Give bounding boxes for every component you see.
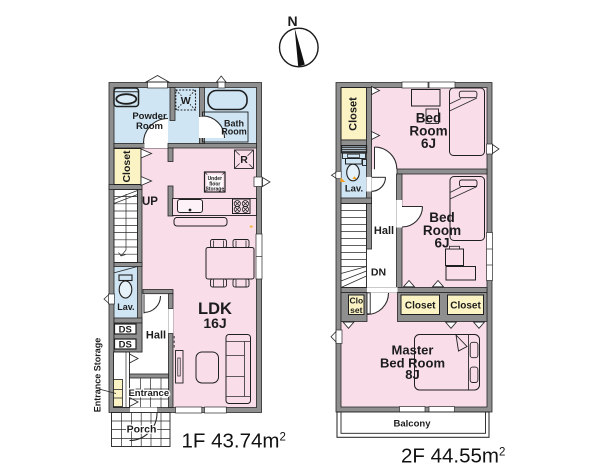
svg-text:2F 44.55m2: 2F 44.55m2 [401, 445, 505, 467]
svg-text:Hall: Hall [146, 330, 166, 342]
svg-text:Balcony: Balcony [394, 419, 432, 430]
svg-text:Clo: Clo [349, 296, 363, 306]
svg-text:N: N [287, 13, 297, 29]
svg-text:Closet: Closet [405, 301, 436, 312]
svg-text:Entrance Storage: Entrance Storage [93, 338, 103, 413]
svg-text:set: set [350, 305, 362, 315]
svg-text:Storage: Storage [205, 187, 224, 193]
svg-text:Lav.: Lav. [345, 184, 363, 195]
svg-text:6J: 6J [434, 236, 449, 251]
svg-text:Closet: Closet [348, 97, 360, 131]
svg-text:R: R [240, 154, 248, 166]
svg-text:DS: DS [119, 339, 132, 350]
svg-text:Porch: Porch [127, 424, 157, 436]
svg-text:Hall: Hall [374, 225, 394, 237]
svg-text:DN: DN [371, 267, 386, 279]
svg-text:Closet: Closet [450, 301, 481, 312]
svg-text:Room: Room [221, 127, 247, 137]
svg-text:DS: DS [119, 324, 132, 335]
svg-text:8J: 8J [405, 367, 419, 382]
svg-text:Room: Room [136, 121, 163, 132]
svg-text:W: W [181, 95, 191, 107]
svg-text:6J: 6J [421, 136, 436, 151]
svg-text:1F 43.74m2: 1F 43.74m2 [182, 430, 286, 453]
svg-text:Entrance: Entrance [128, 388, 169, 399]
svg-text:16J: 16J [203, 315, 226, 331]
svg-text:Closet: Closet [121, 150, 133, 183]
svg-text:UP: UP [142, 196, 158, 208]
svg-text:Lav.: Lav. [117, 302, 134, 312]
